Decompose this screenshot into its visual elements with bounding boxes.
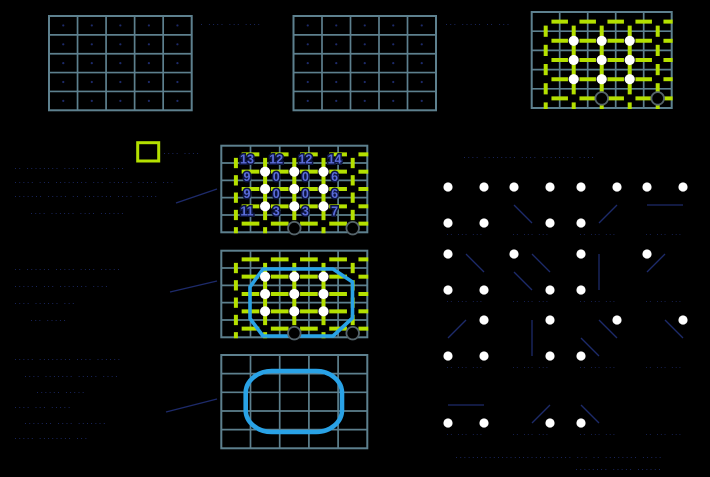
inside-sample-dot [625,74,635,84]
inside-sample-dot [289,306,299,316]
inside-sample-dot [318,201,328,211]
inside-sample-dot [289,289,299,299]
case-corner-dot [443,182,452,191]
case-0: ·· ··· ··· [645,429,682,439]
illegible-text-line: ···· ······ ···· ······ [30,208,125,218]
faint-cell-value [91,43,93,45]
faint-cell-value [392,100,394,102]
case-corner-dot [545,418,554,427]
inside-sample-dot [569,36,579,46]
case-corner-dot [479,182,488,191]
faint-cell-value [91,62,93,64]
faint-cell-value [119,81,121,83]
case-corner-dot [545,218,554,227]
case-corner-dot [509,182,518,191]
faint-cell-value [148,43,150,45]
faint-cell-value [335,100,337,102]
case-label: ·· ··· ··· [645,362,682,372]
illegible-text-line: ······· ···· ······· [24,418,107,428]
faint-cell-value [364,24,366,26]
case-corner-dot [576,182,585,191]
faint-cell-value [392,81,394,83]
case-corner-dot [443,285,452,294]
illegible-text-line: ···· ········ ···· ········ ···· [463,152,595,162]
inside-sample-dot [289,272,299,282]
faint-cell-value [421,24,423,26]
inside-sample-dot [289,167,299,177]
inside-sample-dot [625,55,635,65]
case-corner-dot [545,315,554,324]
faint-cell-value [176,81,178,83]
case-corner-dot [576,351,585,360]
faint-cell-value [364,43,366,45]
case-corner-dot [678,182,687,191]
case-label: ·· ··· ··· [446,229,483,239]
case-corner-dot [642,249,651,258]
case-corner-dot [678,315,687,324]
case-corner-dot [545,351,554,360]
faint-cell-value [91,81,93,83]
outside-sample-circle [595,92,608,105]
case-corner-dot [576,249,585,258]
faint-cell-value [148,100,150,102]
inside-sample-dot [318,306,328,316]
faint-cell-value [176,24,178,26]
inside-sample-dot [260,184,270,194]
case-corner-dot [576,218,585,227]
faint-cell-value [392,24,394,26]
illegible-text-line: ······ ··· ······· ···· [14,281,109,291]
case-corner-dot [612,182,621,191]
inside-sample-dot [260,272,270,282]
case-corner-dot [576,285,585,294]
faint-cell-value [62,43,64,45]
illegible-text-line: ··· ····· [30,315,67,325]
inside-sample-dot [289,201,299,211]
faint-cell-value [335,43,337,45]
case-corner-dot [479,418,488,427]
faint-cell-value [307,24,309,26]
outside-sample-circle [651,92,664,105]
ms-case-number: 11 [240,204,253,218]
inside-sample-dot [260,167,270,177]
inside-sample-dot [569,74,579,84]
figure-svg: · ···· ··· ······· ····· ·· ······· ····… [0,0,710,477]
illegible-text-line: ·· ······ ····· ···· ····· [14,264,121,274]
case-corner-dot [509,249,518,258]
faint-cell-value [176,100,178,102]
ms-case-number: 12 [298,153,312,167]
faint-cell-value [364,62,366,64]
inside-sample-dot [625,36,635,46]
case-corner-dot [443,218,452,227]
faint-cell-value [148,81,150,83]
inside-sample-dot [260,289,270,299]
ms-case-number: 12 [269,153,283,167]
inside-sample-dot [318,289,328,299]
faint-cell-value [335,81,337,83]
illegible-text-line: ······· ····· ·· ······· ···· ····· [14,191,158,201]
inside-sample-dot [289,184,299,194]
case-corner-dot [576,418,585,427]
illegible-text-line: ·· ········ ···· ······ ··· [14,163,125,173]
marching-squares-figure: · ···· ··· ······· ····· ·· ······· ····… [0,0,710,477]
ms-case-number: 9 [244,187,251,201]
illegible-text-line: ···· ······· ····· ···· [24,371,119,381]
illegible-text-line: ···· ···· [163,148,200,158]
illegible-text-line: ··· ····· ·· ··· [445,19,511,29]
ms-case-number: 6 [331,187,338,201]
case-corner-dot [479,285,488,294]
ms-case-number: 3 [302,204,309,218]
inside-sample-dot [318,167,328,177]
ms-case-number: 0 [273,170,280,184]
faint-cell-value [421,81,423,83]
case-label: ·· ··· ··· [579,296,616,306]
case-corner-dot [545,182,554,191]
inside-sample-dot [597,55,607,65]
inside-sample-dot [597,74,607,84]
faint-cell-value [119,24,121,26]
ms-case-number: 13 [240,153,254,167]
case-label: ·· ··· ··· [645,229,682,239]
illegible-text-line: ····· ········ ··· [14,433,89,443]
faint-cell-value [148,62,150,64]
faint-cell-value [307,62,309,64]
faint-cell-value [91,100,93,102]
faint-cell-value [421,43,423,45]
illegible-text-line: ········ ····· ······ [575,464,662,474]
case-label: ·· ··· ··· [579,429,616,439]
ms-case-number: 6 [331,170,338,184]
faint-cell-value [307,81,309,83]
inside-sample-dot [260,306,270,316]
faint-cell-value [421,62,423,64]
inside-sample-dot [318,184,328,194]
outside-sample-circle [346,327,359,340]
faint-cell-value [307,100,309,102]
outside-sample-circle [288,222,301,235]
case-label: ·· ··· ··· [512,296,549,306]
inside-sample-dot [318,272,328,282]
ms-case-number: 9 [244,170,251,184]
faint-cell-value [364,100,366,102]
case-corner-dot [479,351,488,360]
faint-cell-value [119,62,121,64]
faint-cell-value [335,24,337,26]
illegible-text-line: ····· ··· ········ ··· ······ ····· ··· [14,177,175,187]
faint-cell-value [62,24,64,26]
case-label: ·· ··· ··· [512,362,549,372]
case-label: ·· ··· ··· [512,229,549,239]
ms-case-number: 3 [273,204,280,218]
faint-cell-value [119,43,121,45]
inside-sample-dot [597,36,607,46]
faint-cell-value [62,62,64,64]
case-label: ·· ··· ··· [645,429,682,439]
faint-cell-value [176,43,178,45]
faint-cell-value [119,100,121,102]
faint-cell-value [62,100,64,102]
case-label: ·· ··· ··· [512,429,549,439]
case-corner-dot [479,218,488,227]
faint-cell-value [421,100,423,102]
case-corner-dot [443,418,452,427]
faint-cell-value [62,81,64,83]
outside-sample-circle [346,222,359,235]
ms-case-number: 0 [302,187,309,201]
illegible-text-line: ······ ····· [36,387,86,397]
case-corner-dot [443,351,452,360]
case-corner-dot [545,285,554,294]
ms-case-number: 0 [302,170,309,184]
inside-sample-dot [569,55,579,65]
case-label: ·· ··· ··· [579,229,616,239]
faint-cell-value [148,24,150,26]
illegible-text-line: ····· ········ ···· ······ [14,354,122,364]
ms-case-number: 7 [331,204,338,218]
case-label: ·· ··· ··· [446,362,483,372]
case-label: ·· ··· ··· [645,296,682,306]
faint-cell-value [364,81,366,83]
faint-cell-value [335,62,337,64]
faint-cell-value [392,43,394,45]
case-corner-dot [642,182,651,191]
case-label: ·· ··· ··· [579,362,616,372]
outside-sample-circle [288,327,301,340]
illegible-text-line: ···· ··· ····· [14,402,72,412]
case-label: ·· ··· ··· [446,296,483,306]
faint-cell-value [392,62,394,64]
case-corner-dot [612,315,621,324]
illegible-text-line: ···· ······ ··· [14,298,76,308]
case-label: ·· ··· ··· [446,429,483,439]
illegible-text-line: ···························· ··· ·· ····… [455,452,663,462]
inside-sample-dot [260,201,270,211]
faint-cell-value [307,43,309,45]
case-corner-dot [479,315,488,324]
ms-case-number: 0 [273,187,280,201]
ms-case-number: 14 [328,153,342,167]
illegible-text-line: · ···· ··· ···· [200,19,261,29]
case-corner-dot [443,249,452,258]
faint-cell-value [176,62,178,64]
faint-cell-value [91,24,93,26]
